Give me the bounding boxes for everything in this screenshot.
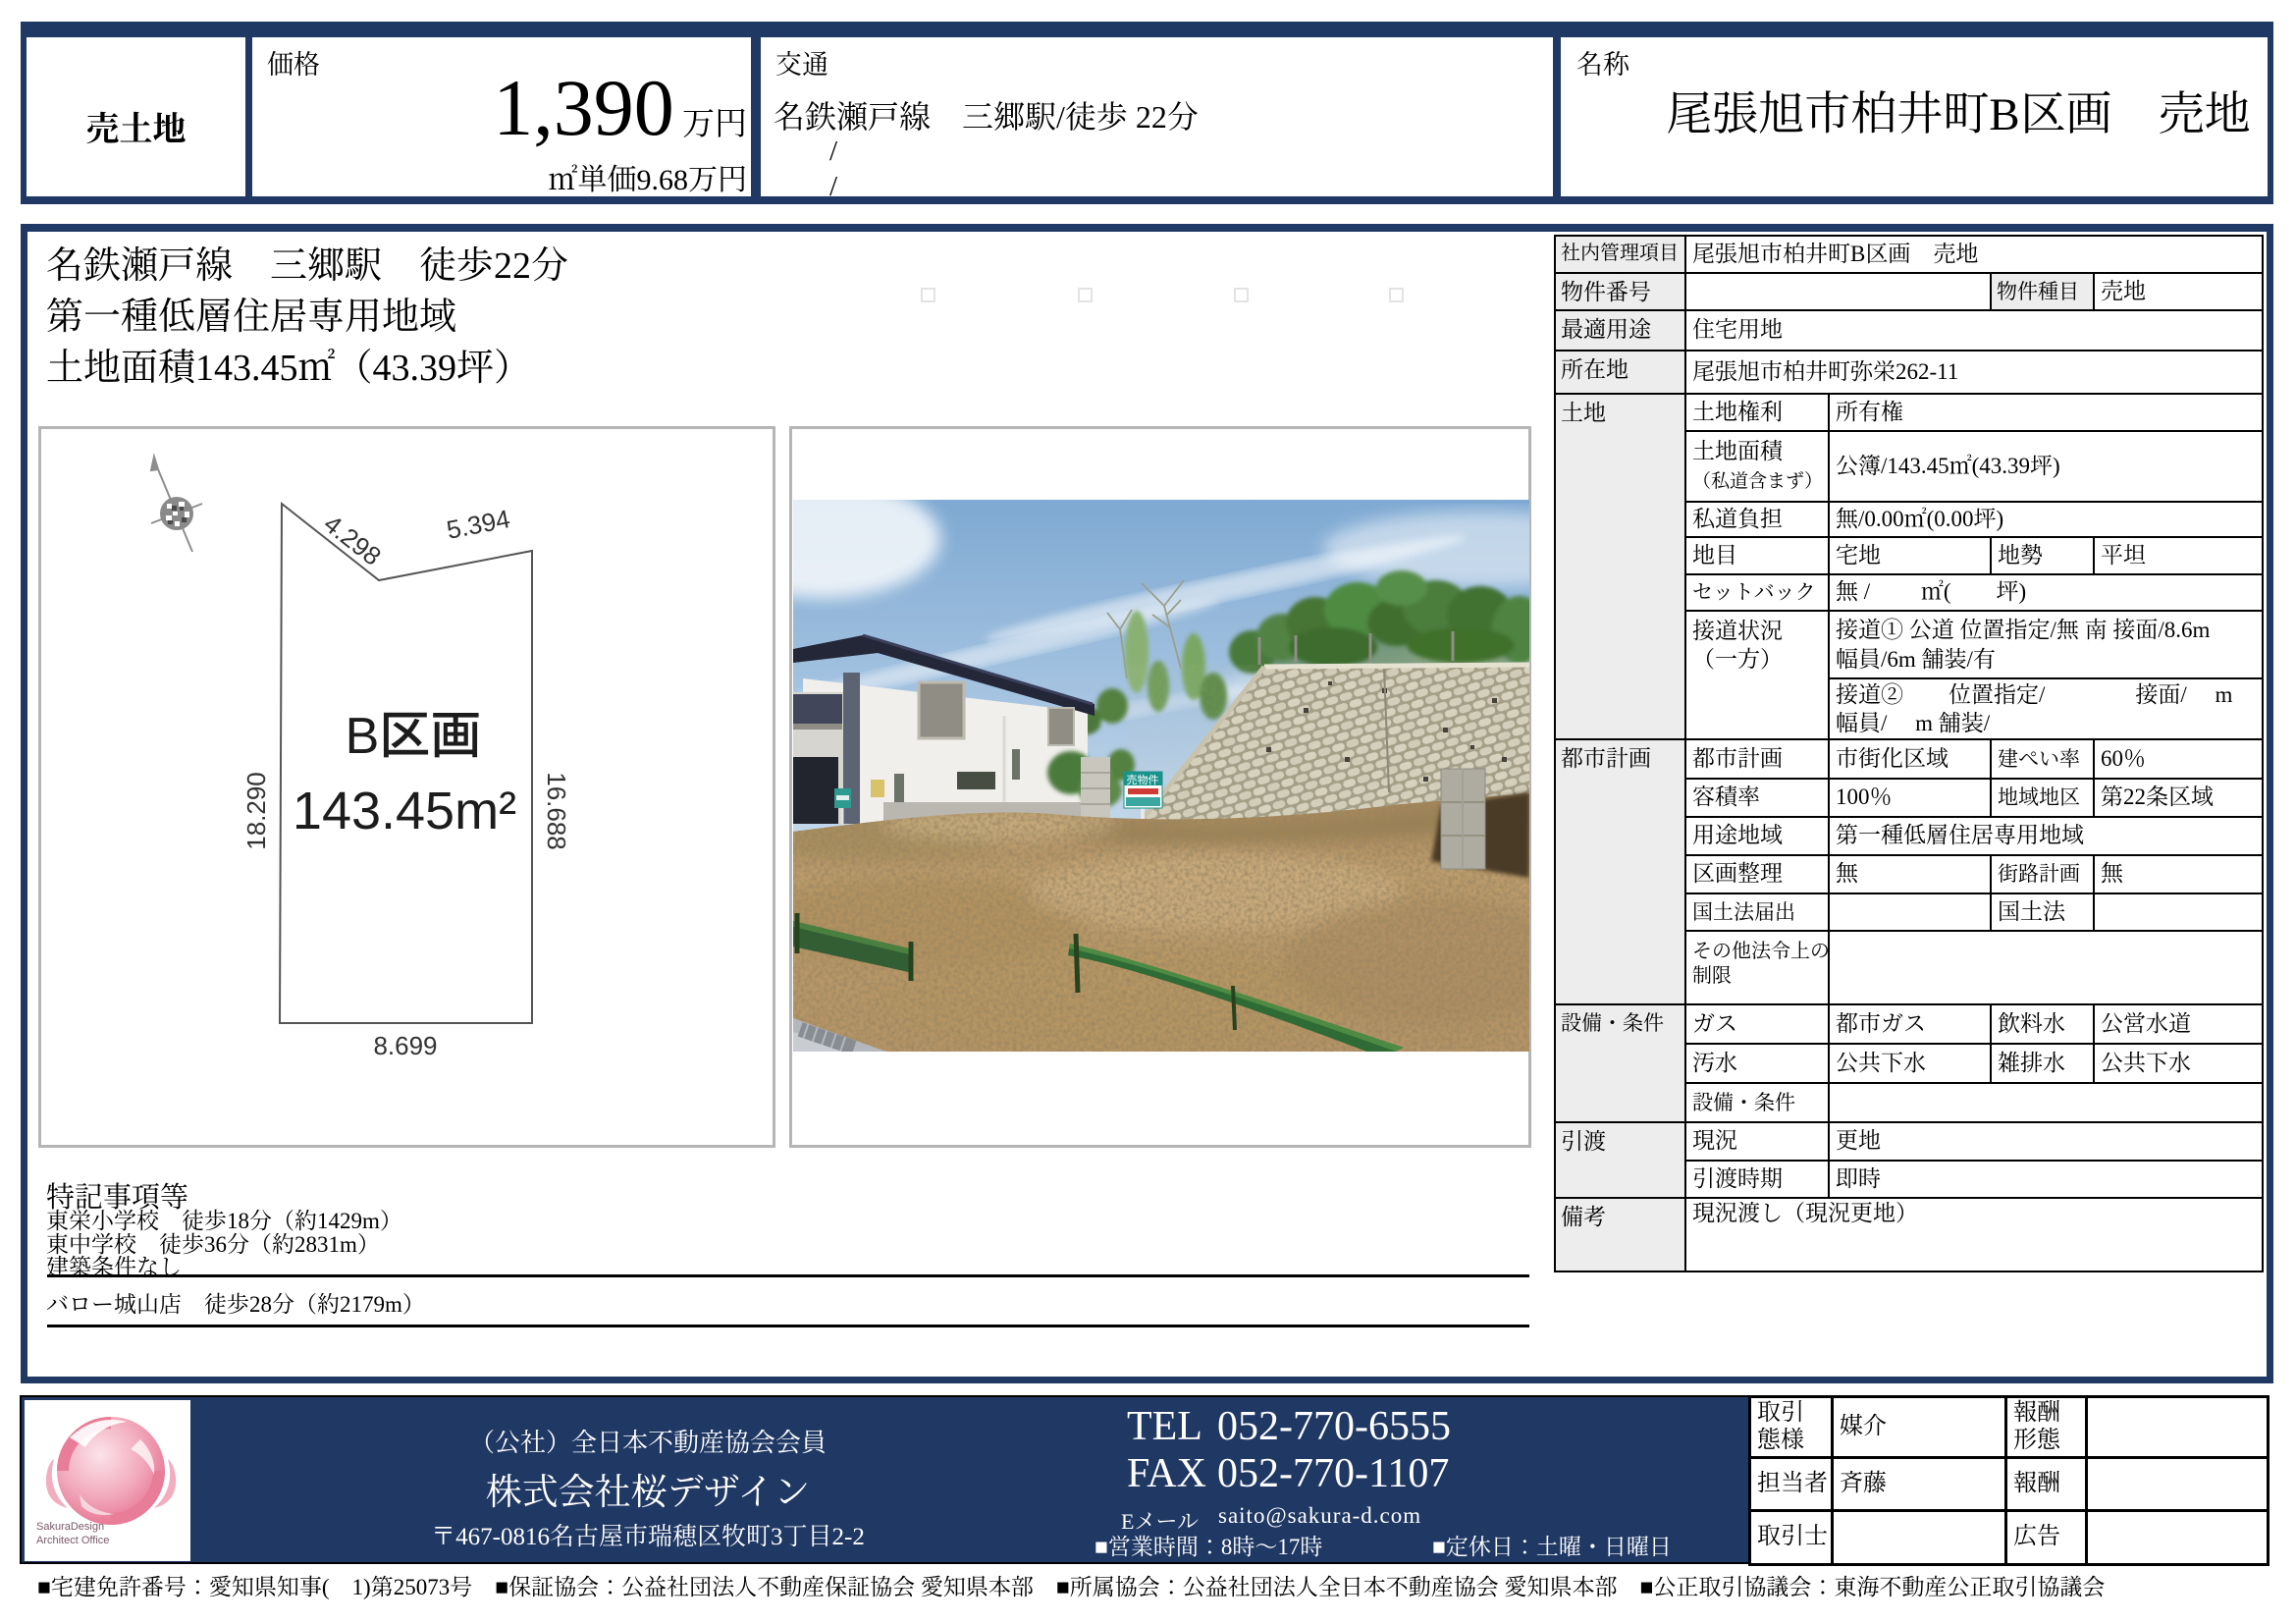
- svg-text:B区画: B区画: [346, 708, 482, 765]
- svg-text:Architect Office: Architect Office: [36, 1535, 109, 1546]
- svg-text:SakuraDesign: SakuraDesign: [36, 1521, 104, 1533]
- svg-text:売物件: 売物件: [1127, 773, 1159, 786]
- svg-text:16.688: 16.688: [542, 772, 571, 850]
- svg-text:143.45m²: 143.45m²: [293, 782, 516, 840]
- svg-text:8.699: 8.699: [373, 1031, 437, 1060]
- svg-text:18.290: 18.290: [241, 772, 271, 850]
- svg-text:5.394: 5.394: [444, 504, 512, 545]
